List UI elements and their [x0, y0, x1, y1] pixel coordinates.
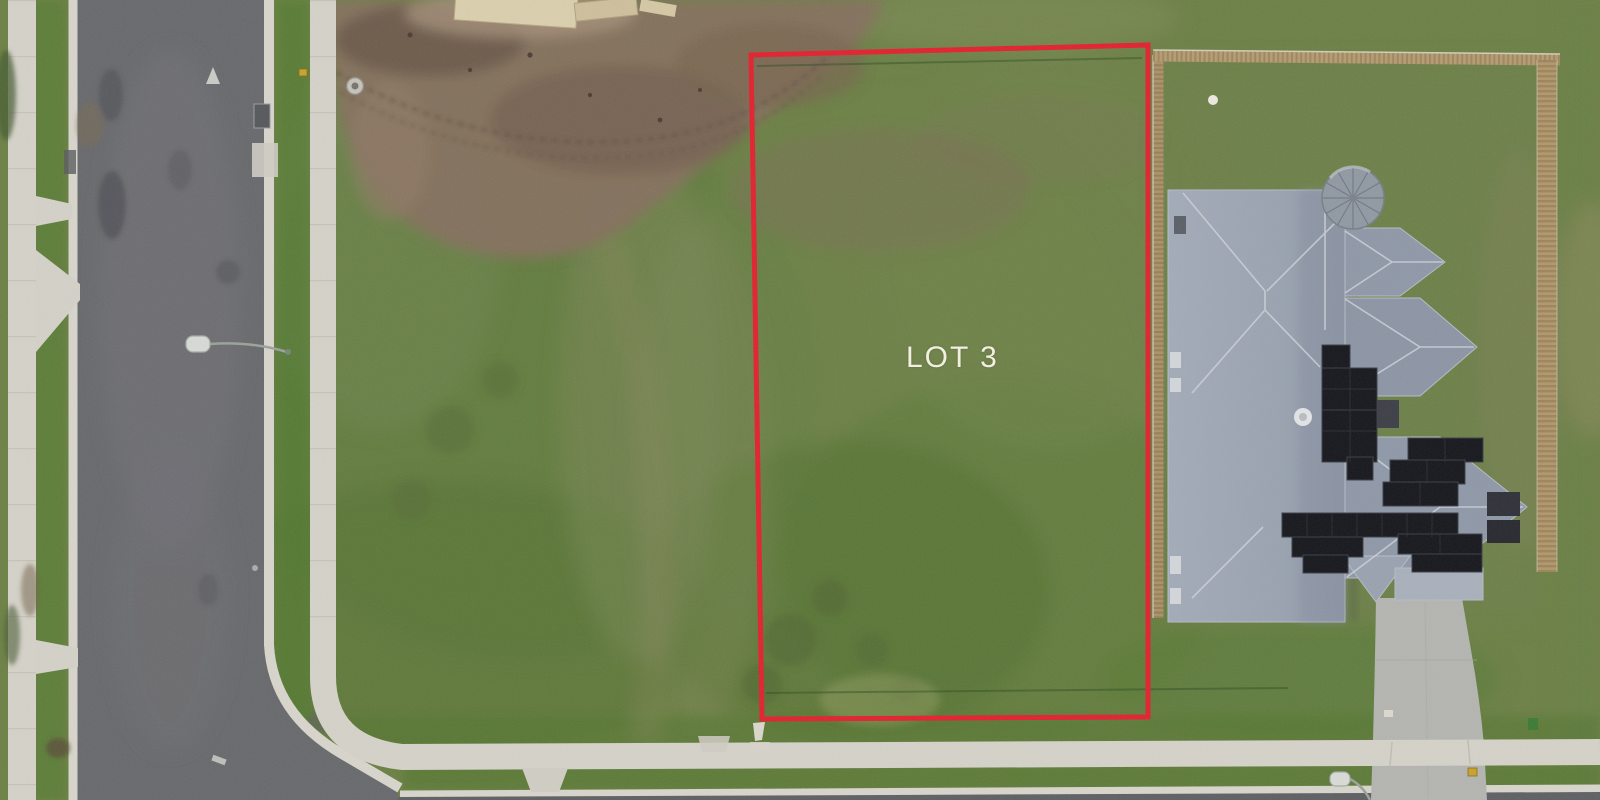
aerial-photo: LOT 3 — [0, 0, 1600, 800]
lot-label: LOT 3 — [906, 341, 999, 375]
photo-grain — [0, 0, 1600, 800]
aerial-photo-canvas — [0, 0, 1600, 800]
